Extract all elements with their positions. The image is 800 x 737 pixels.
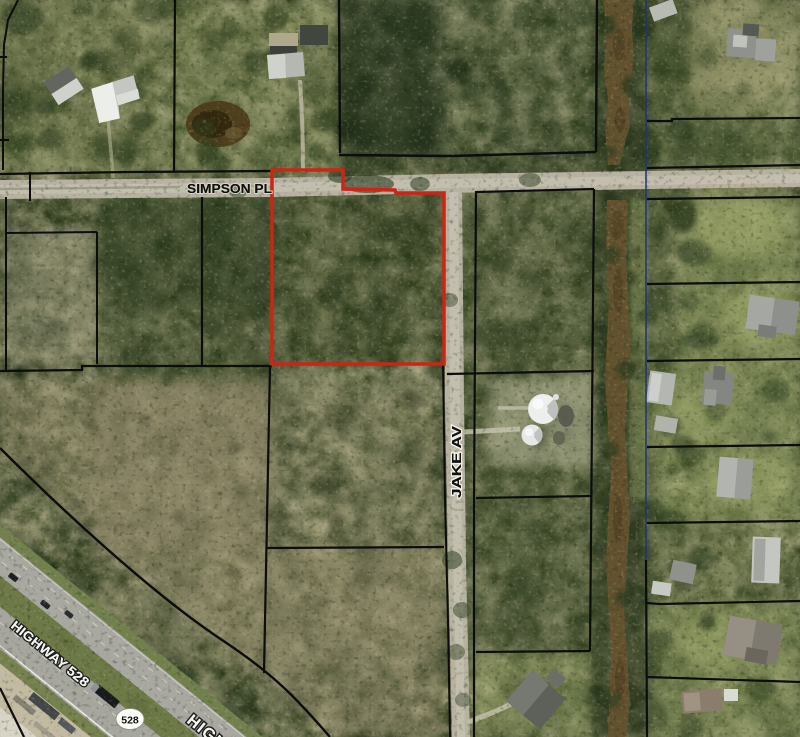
svg-text:JAKE AV: JAKE AV xyxy=(449,426,464,498)
svg-text:SIMPSON PL: SIMPSON PL xyxy=(187,181,272,196)
svg-text:528: 528 xyxy=(121,715,139,727)
